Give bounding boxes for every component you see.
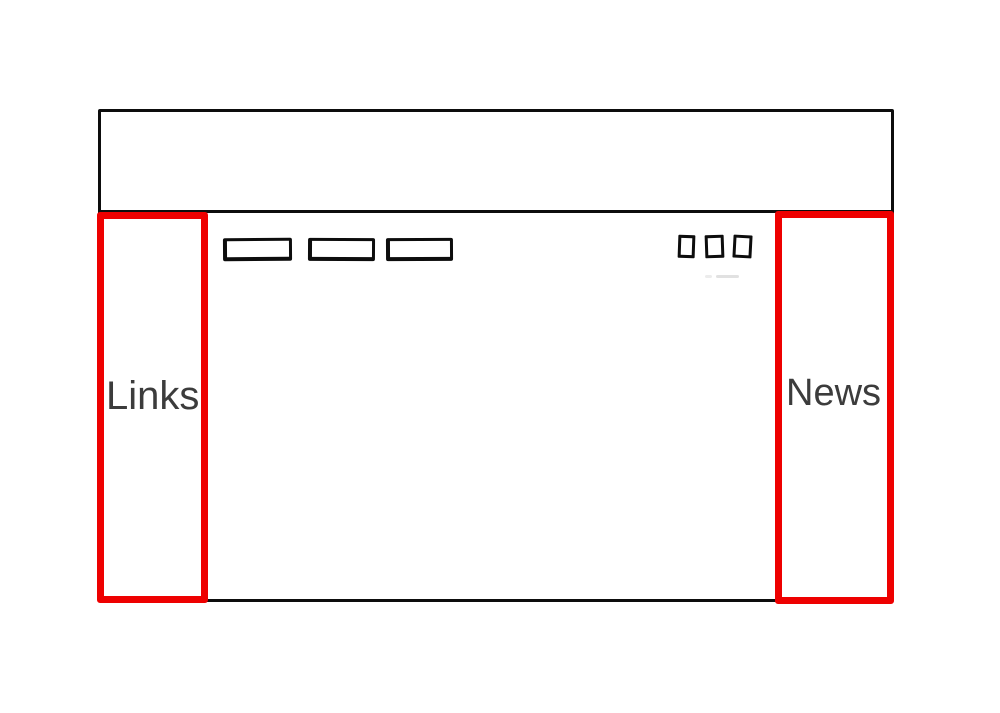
links-sidebar-annotation: Links [97, 212, 208, 603]
window-control-placeholder [678, 235, 696, 259]
links-label: Links [106, 376, 199, 416]
news-sidebar-annotation: News [775, 211, 894, 604]
window-control-placeholder [732, 235, 752, 259]
wireframe-canvas: Links News [0, 0, 1000, 713]
header-placeholder [98, 109, 894, 213]
nav-button-placeholder [386, 238, 453, 261]
window-control-placeholder [705, 235, 725, 259]
nav-button-placeholder [308, 238, 375, 261]
nav-button-placeholder [223, 238, 292, 261]
news-label: News [786, 374, 881, 412]
pencil-smudge [716, 275, 739, 278]
pencil-smudge [705, 275, 712, 278]
